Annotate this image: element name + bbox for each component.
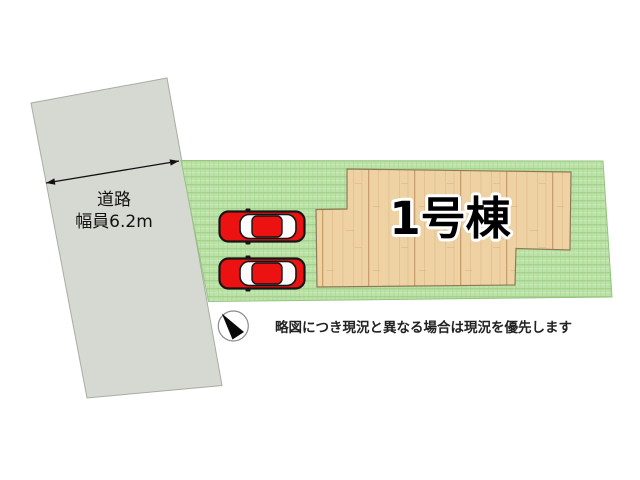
road-name-text: 道路 xyxy=(97,190,131,210)
car-1 xyxy=(220,209,305,245)
road-width-text: 幅員6.2m xyxy=(75,212,153,232)
building-label: 1号棟 xyxy=(389,192,511,245)
car-mirror-icon xyxy=(246,241,251,245)
car-mirror-icon xyxy=(246,256,251,260)
site-plan-canvas: 道路 幅員6.2m 1号棟 略 xyxy=(0,0,640,480)
disclaimer-note: 略図につき現況と異なる場合は現況を優先します xyxy=(275,319,572,336)
site-plan: 道路 幅員6.2m 1号棟 略 xyxy=(0,0,640,480)
road-area xyxy=(31,78,222,398)
car-mirror-icon xyxy=(246,288,251,292)
car-mirror-icon xyxy=(246,209,251,213)
car-2 xyxy=(220,256,305,292)
north-arrow-icon xyxy=(218,311,248,341)
